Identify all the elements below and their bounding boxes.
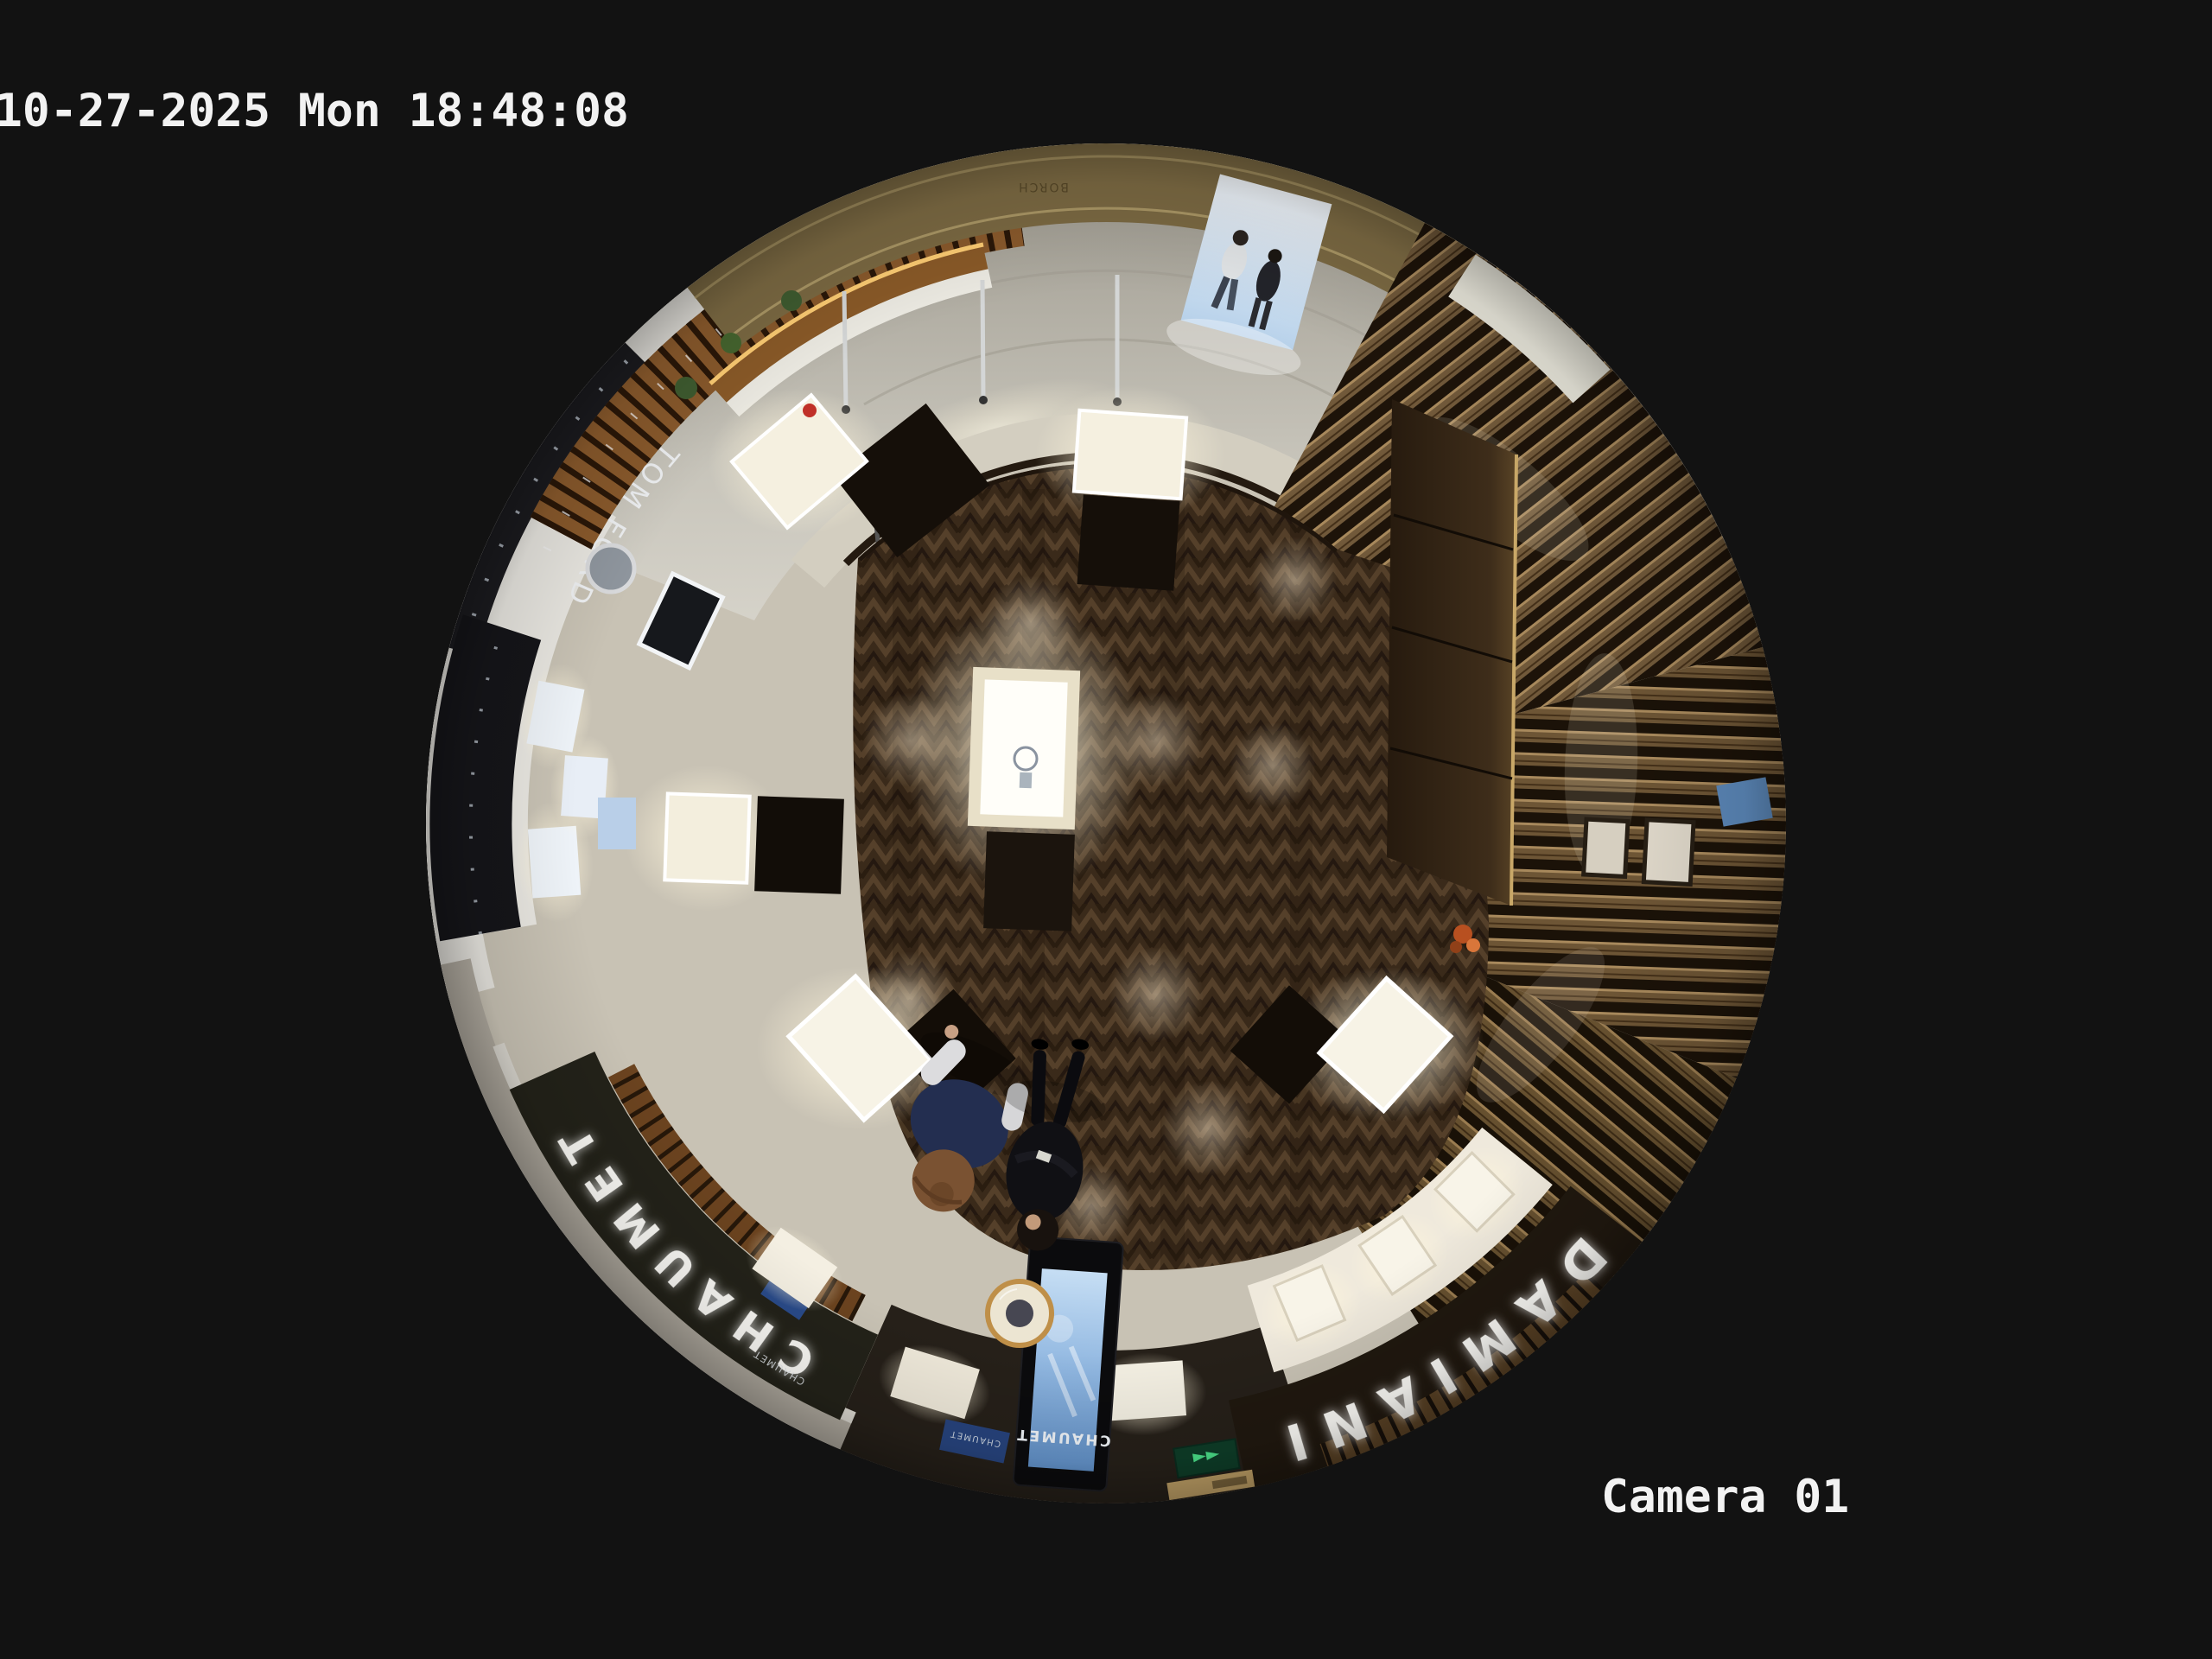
fisheye-view: BORCH bbox=[426, 143, 1786, 1503]
lens-vignette bbox=[426, 143, 1786, 1503]
cctv-viewer: 10-27-2025 Mon 18:48:08 Camera 01 bbox=[0, 0, 2212, 1659]
fisheye-scene: BORCH bbox=[426, 143, 1786, 1503]
osd-timestamp: 10-27-2025 Mon 18:48:08 bbox=[0, 88, 629, 134]
osd-camera-label: Camera 01 bbox=[1601, 1474, 1849, 1520]
